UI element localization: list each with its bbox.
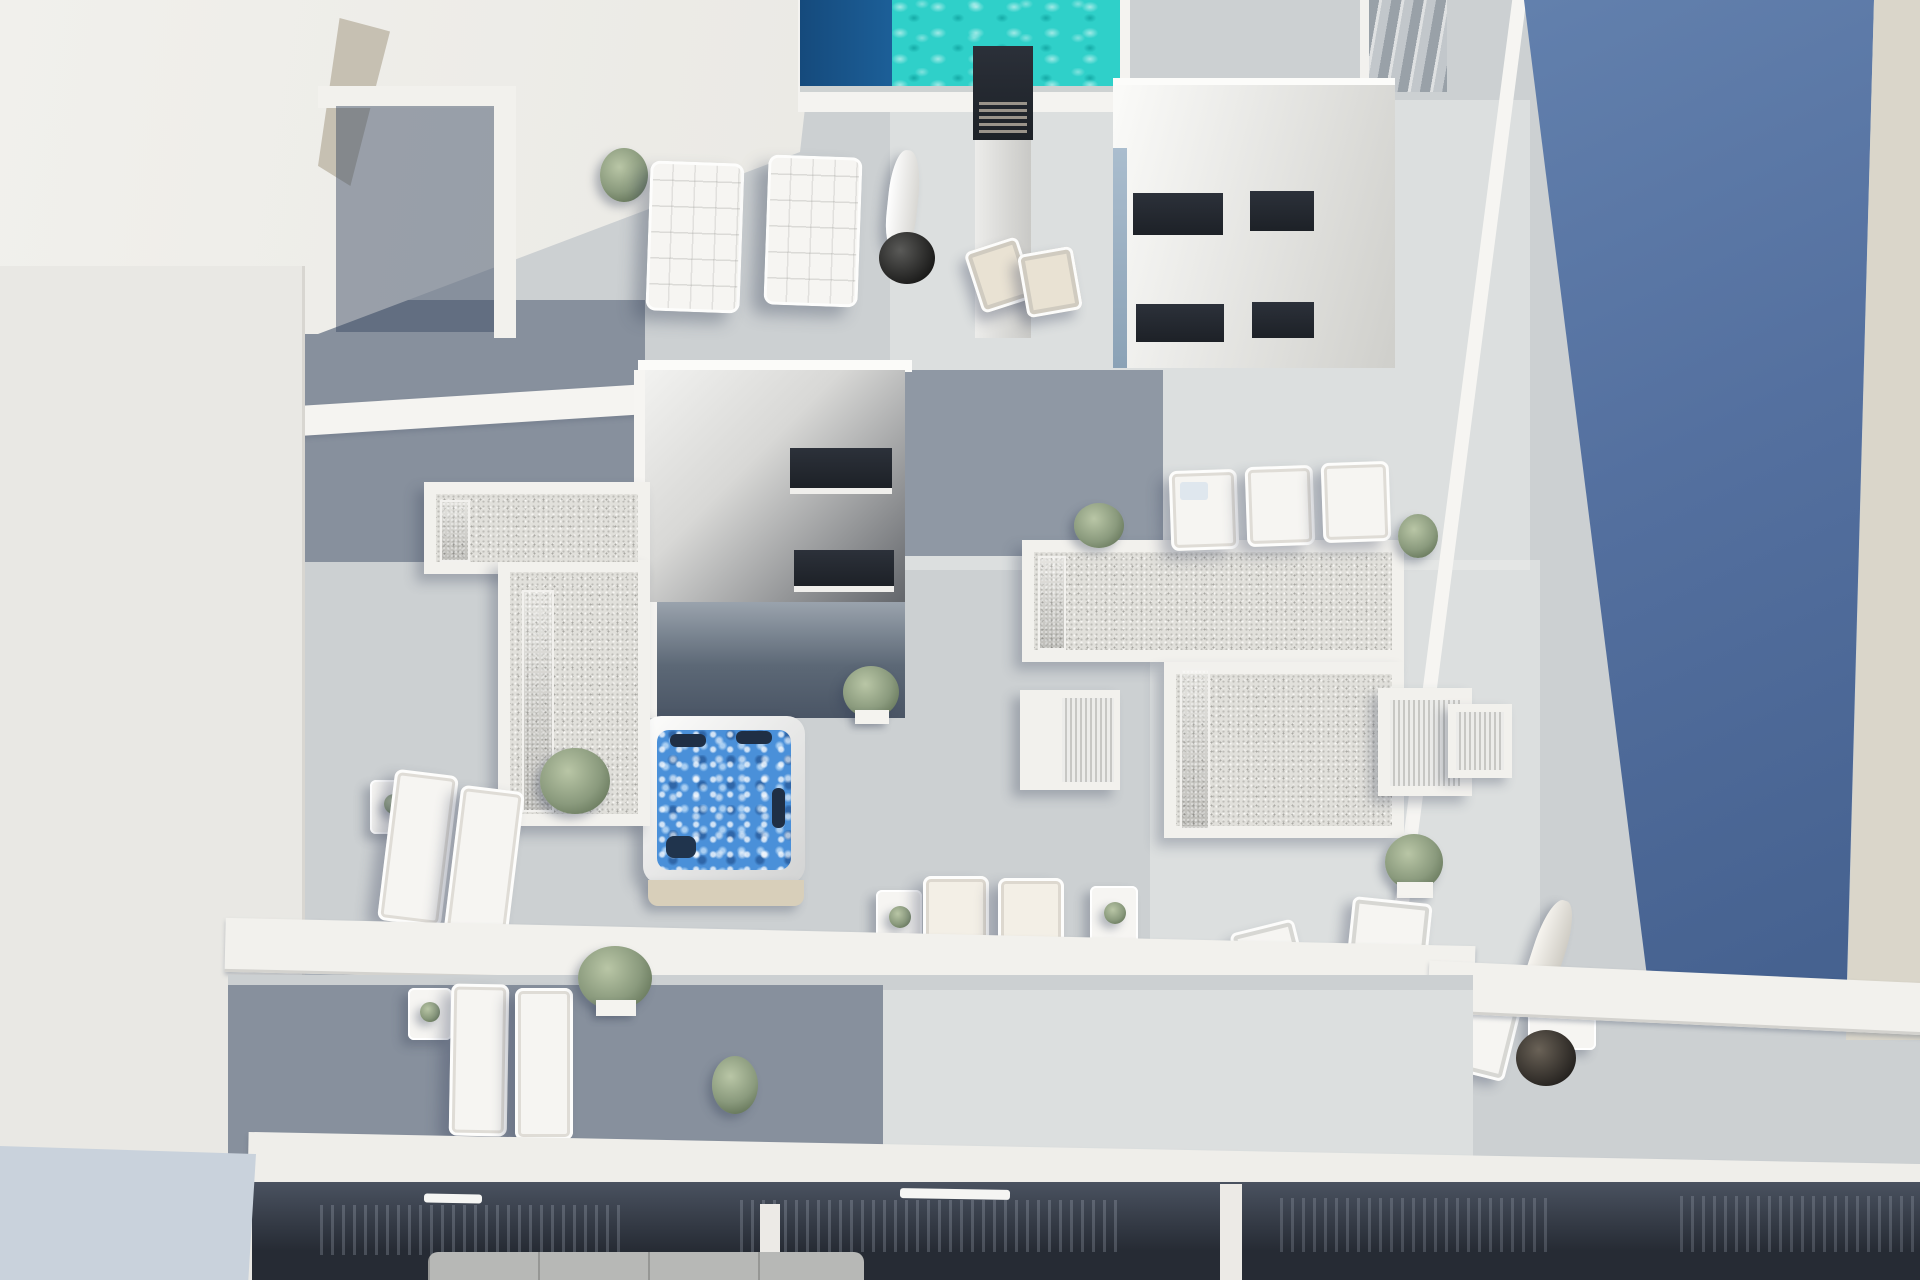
bush-lower-left bbox=[540, 748, 610, 814]
parasol-pool-base bbox=[879, 232, 935, 284]
lower-terrace-bush-1-pot bbox=[596, 1000, 636, 1016]
bulkhead-upper-window-2 bbox=[1250, 191, 1314, 231]
ac-unit-grille bbox=[1456, 712, 1504, 770]
door-handle-2 bbox=[900, 1188, 1010, 1200]
lower-terrace-sunlit bbox=[883, 990, 1473, 1167]
lower-terrace-lounger-1 bbox=[449, 984, 510, 1137]
railing-slats-4 bbox=[1680, 1196, 1920, 1252]
hot-tub-headrest-2 bbox=[736, 731, 772, 744]
bulkhead-lower-skylight-1 bbox=[790, 448, 892, 494]
plant-upper-right bbox=[1398, 514, 1438, 558]
parasol-right-base bbox=[1516, 1030, 1576, 1086]
planter-pot-right bbox=[1397, 882, 1433, 898]
hot-tub-headrest-1 bbox=[670, 734, 706, 747]
lower-terrace-plant-2 bbox=[712, 1056, 758, 1114]
corner-terrace-parapet-top bbox=[318, 86, 510, 108]
flat-lounger-2 bbox=[1245, 465, 1316, 547]
side-table-plant-c2 bbox=[1104, 902, 1126, 924]
hot-tub-headrest-4 bbox=[666, 836, 696, 858]
hot-tub-headrest-3 bbox=[772, 788, 785, 828]
louver-cabinet-1-door bbox=[1062, 698, 1114, 782]
pool-coping-shadow bbox=[800, 86, 1122, 92]
sofa-lower-floor bbox=[428, 1252, 864, 1280]
bulkhead-upper-skylight bbox=[1113, 148, 1127, 368]
lower-terrace-table-plant bbox=[420, 1002, 440, 1022]
railing-slats-2 bbox=[740, 1200, 1120, 1252]
deck-chair-2 bbox=[1017, 246, 1083, 319]
side-table-plant-c1 bbox=[889, 906, 911, 928]
flat-lounger-1-towel bbox=[1180, 482, 1208, 500]
scene-rooftop-render bbox=[0, 0, 1920, 1280]
plant-poolside bbox=[600, 148, 648, 202]
bulkhead-upper-window-1 bbox=[1133, 193, 1223, 235]
padded-lounger-2 bbox=[763, 154, 862, 307]
deck-shadow-mid bbox=[905, 370, 1163, 556]
skylight-strip-right-1 bbox=[1038, 556, 1066, 650]
skylight-strip-right-2 bbox=[1180, 668, 1210, 830]
railing-slats-1 bbox=[320, 1205, 620, 1255]
door-handle-1 bbox=[424, 1193, 482, 1203]
lower-terrace-lounger-2 bbox=[515, 988, 573, 1140]
bulkhead-upper-window-4 bbox=[1252, 302, 1314, 338]
pool-deep-section bbox=[800, 0, 892, 86]
railing-slats-3 bbox=[1280, 1198, 1550, 1252]
plant-gravel-corner bbox=[1074, 503, 1124, 548]
skylight-strip-left-1 bbox=[440, 500, 470, 562]
bulkhead-lower-skylight-2 bbox=[794, 550, 894, 592]
gravel-roof-right-top bbox=[1034, 552, 1392, 650]
chimney-grille bbox=[979, 102, 1027, 134]
corner-terrace-deck bbox=[336, 106, 494, 332]
plant-courtyard-pot bbox=[855, 710, 889, 724]
hot-tub-step bbox=[648, 880, 804, 906]
bulkhead-upper-window-3 bbox=[1136, 304, 1224, 342]
padded-lounger-1 bbox=[645, 160, 744, 313]
flat-lounger-3 bbox=[1321, 461, 1392, 543]
facade-column-2 bbox=[1220, 1184, 1242, 1280]
corner-terrace-parapet-right bbox=[494, 86, 516, 338]
corner-wall-bottom-left bbox=[0, 1146, 256, 1280]
